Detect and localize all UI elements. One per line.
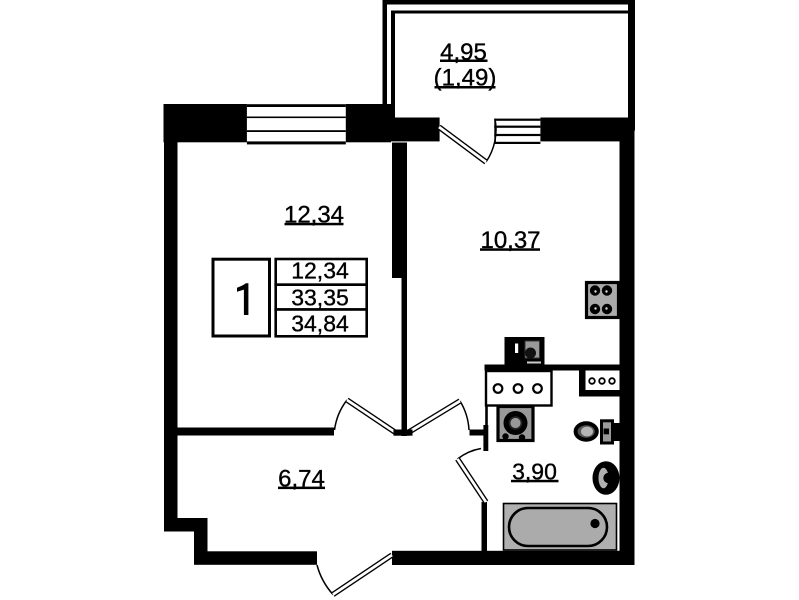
- svg-text:33,35: 33,35: [291, 285, 349, 311]
- svg-text:34,84: 34,84: [291, 311, 349, 337]
- svg-text:12,34: 12,34: [291, 258, 349, 284]
